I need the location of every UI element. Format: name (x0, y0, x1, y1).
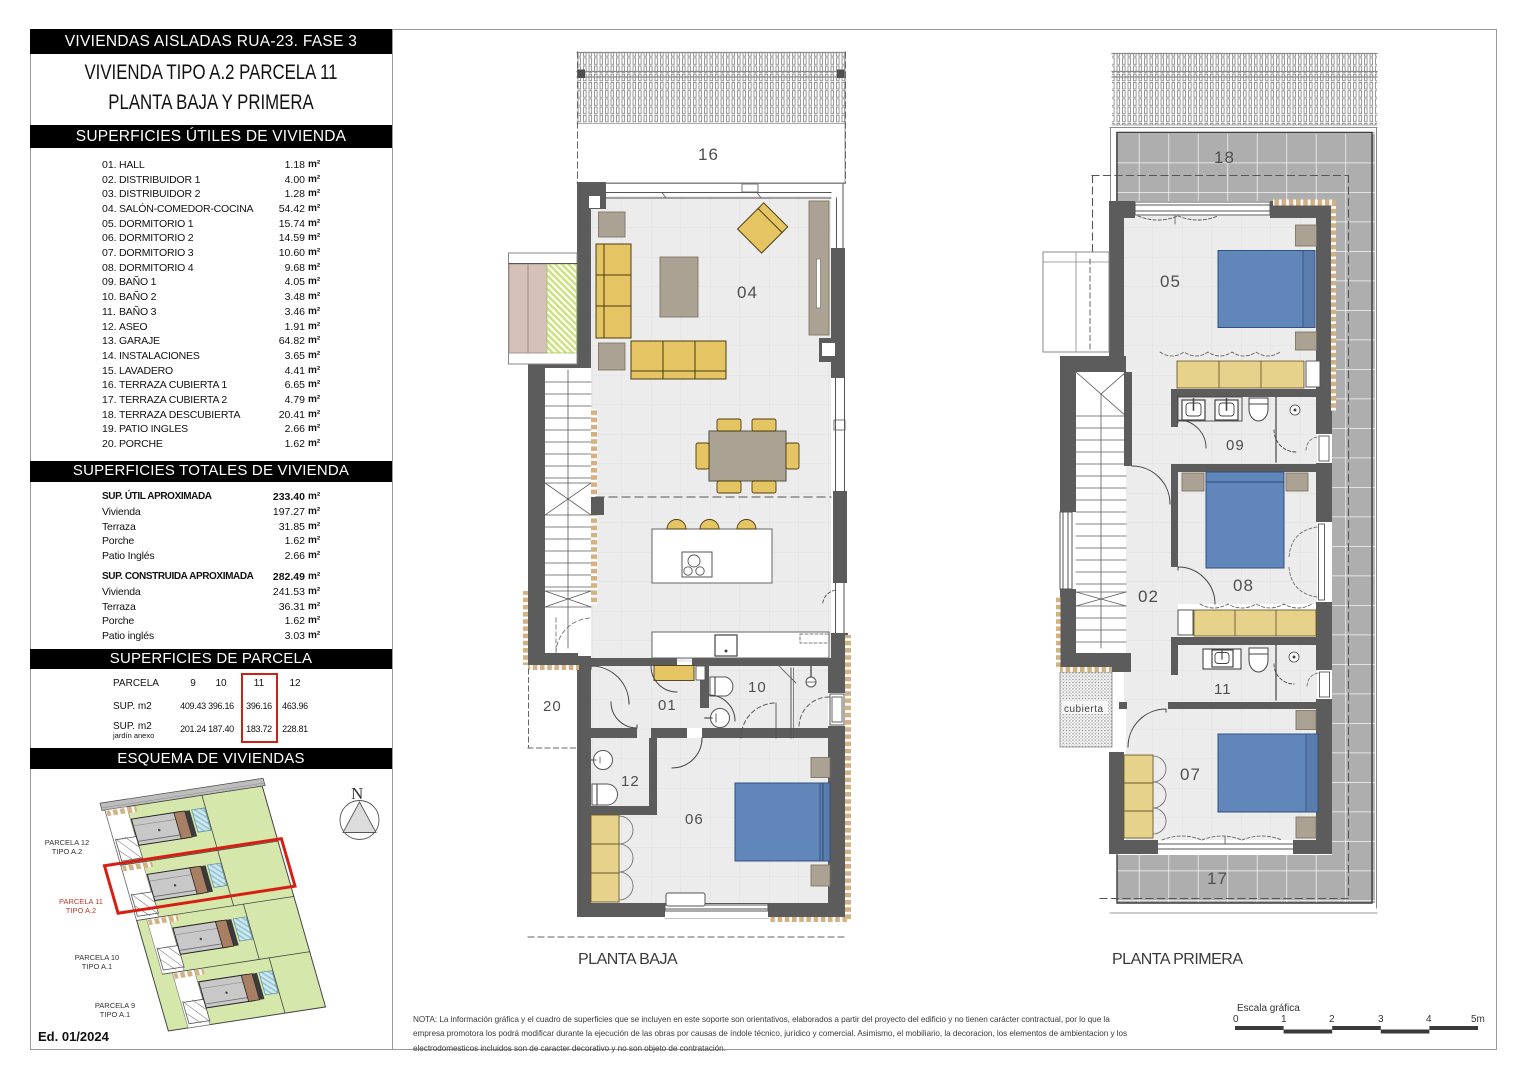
svg-text:04: 04 (737, 283, 758, 302)
svg-text:11: 11 (1214, 681, 1232, 698)
svg-text:06: 06 (685, 811, 704, 828)
svg-text:17: 17 (1207, 869, 1228, 888)
svg-text:18: 18 (1214, 148, 1235, 167)
svg-text:N: N (351, 784, 363, 803)
svg-text:2: 2 (1329, 1014, 1335, 1025)
svg-text:0: 0 (1233, 1014, 1239, 1025)
svg-text:05: 05 (1160, 272, 1181, 291)
svg-text:PLANTA PRIMERA: PLANTA PRIMERA (1112, 951, 1243, 968)
svg-text:PLANTA BAJA: PLANTA BAJA (578, 951, 678, 968)
svg-text:cubierta: cubierta (1064, 704, 1104, 715)
svg-text:09: 09 (1226, 437, 1245, 454)
svg-text:16: 16 (698, 145, 719, 164)
svg-text:3: 3 (1378, 1014, 1384, 1025)
svg-text:01: 01 (658, 697, 677, 714)
svg-text:20: 20 (543, 698, 562, 715)
svg-text:10: 10 (748, 679, 767, 696)
svg-text:5m: 5m (1471, 1014, 1485, 1025)
svg-text:02: 02 (1138, 587, 1159, 606)
svg-text:1: 1 (1281, 1014, 1287, 1025)
svg-text:4: 4 (1426, 1014, 1432, 1025)
svg-text:12: 12 (621, 773, 640, 790)
svg-text:Escala gráfica: Escala gráfica (1237, 1003, 1300, 1014)
svg-text:07: 07 (1180, 765, 1201, 784)
svg-text:08: 08 (1233, 576, 1254, 595)
